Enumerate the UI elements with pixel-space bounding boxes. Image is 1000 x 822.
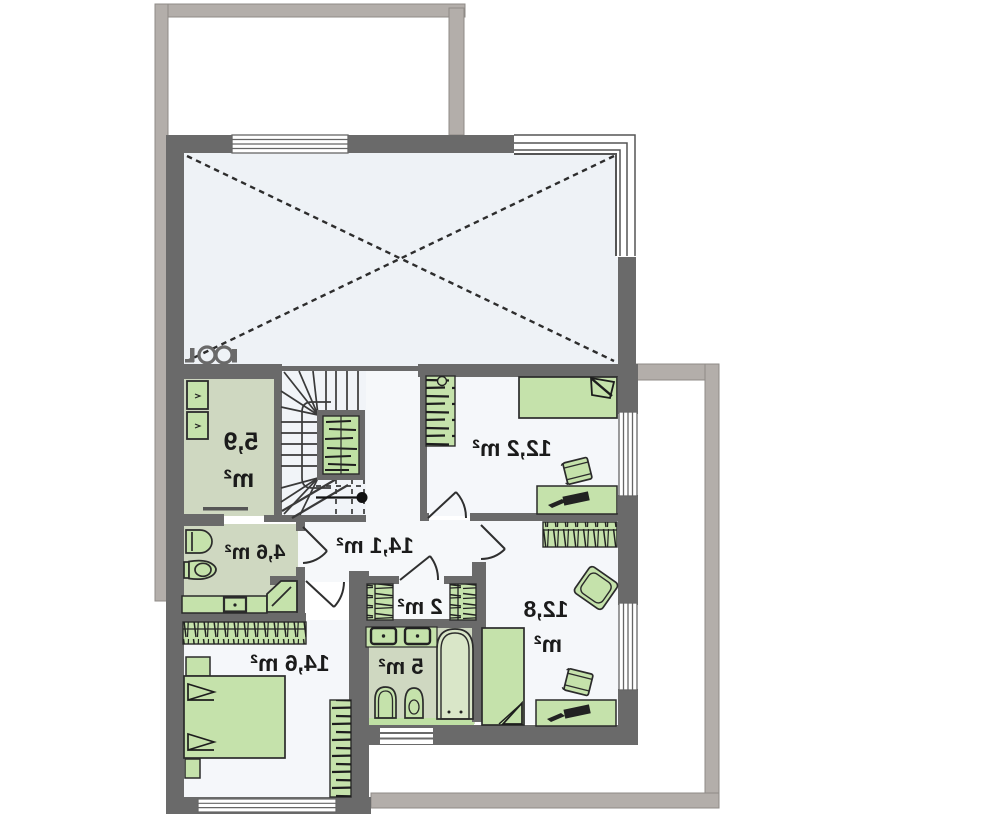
svg-text:4,6 m²: 4,6 m² <box>225 541 286 564</box>
svg-text:m²: m² <box>534 631 562 657</box>
svg-text:5,9: 5,9 <box>224 428 259 456</box>
svg-text:12,2 m²: 12,2 m² <box>472 435 552 461</box>
svg-text:2 m²: 2 m² <box>397 594 442 619</box>
svg-text:12,8: 12,8 <box>523 596 568 622</box>
svg-text:14,1 m²: 14,1 m² <box>336 533 414 558</box>
svg-text:14,6 m²: 14,6 m² <box>250 650 330 676</box>
svg-text:m²: m² <box>224 465 255 493</box>
svg-text:5 m²: 5 m² <box>378 654 423 679</box>
